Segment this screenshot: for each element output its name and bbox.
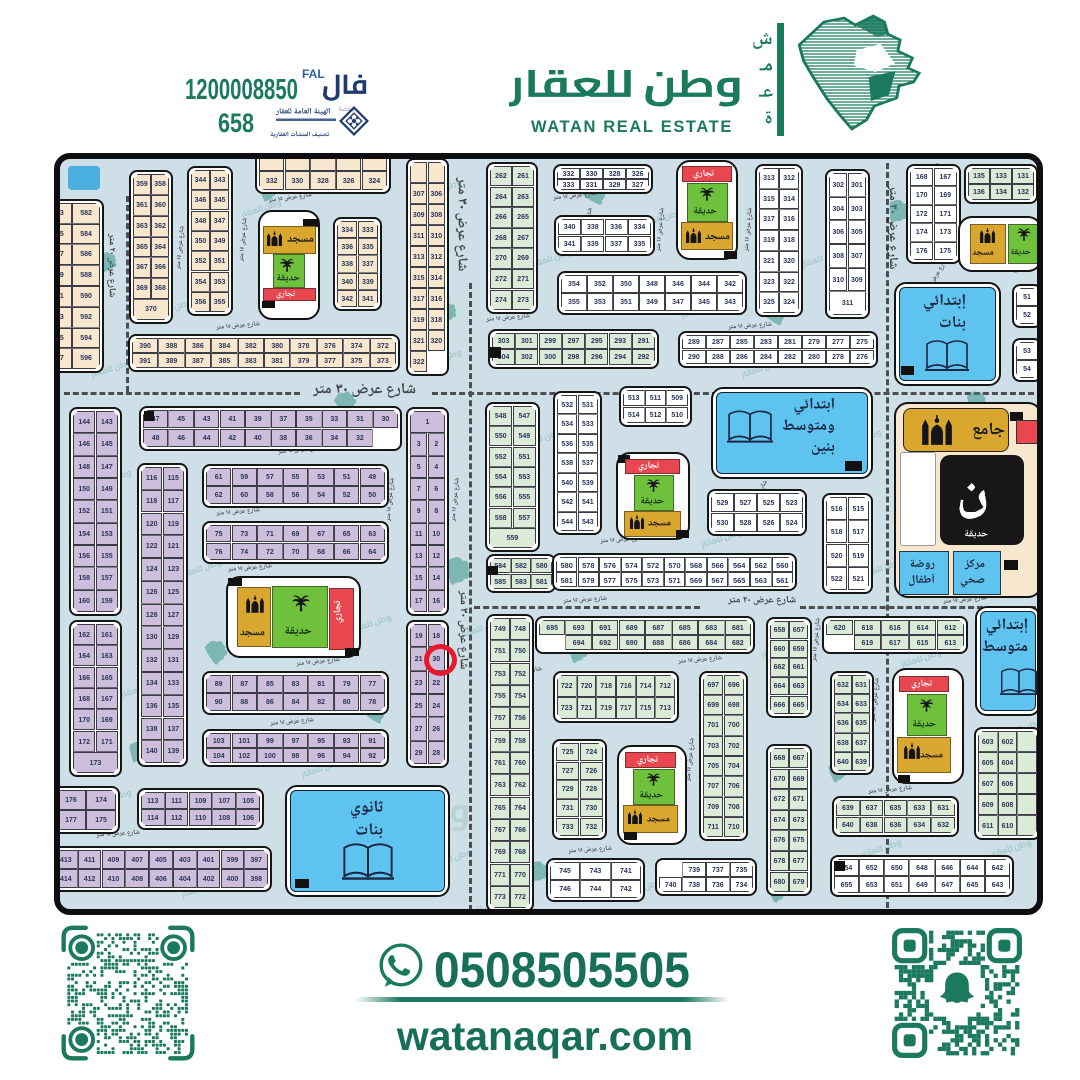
svg-text:FAL: FAL: [302, 67, 325, 81]
